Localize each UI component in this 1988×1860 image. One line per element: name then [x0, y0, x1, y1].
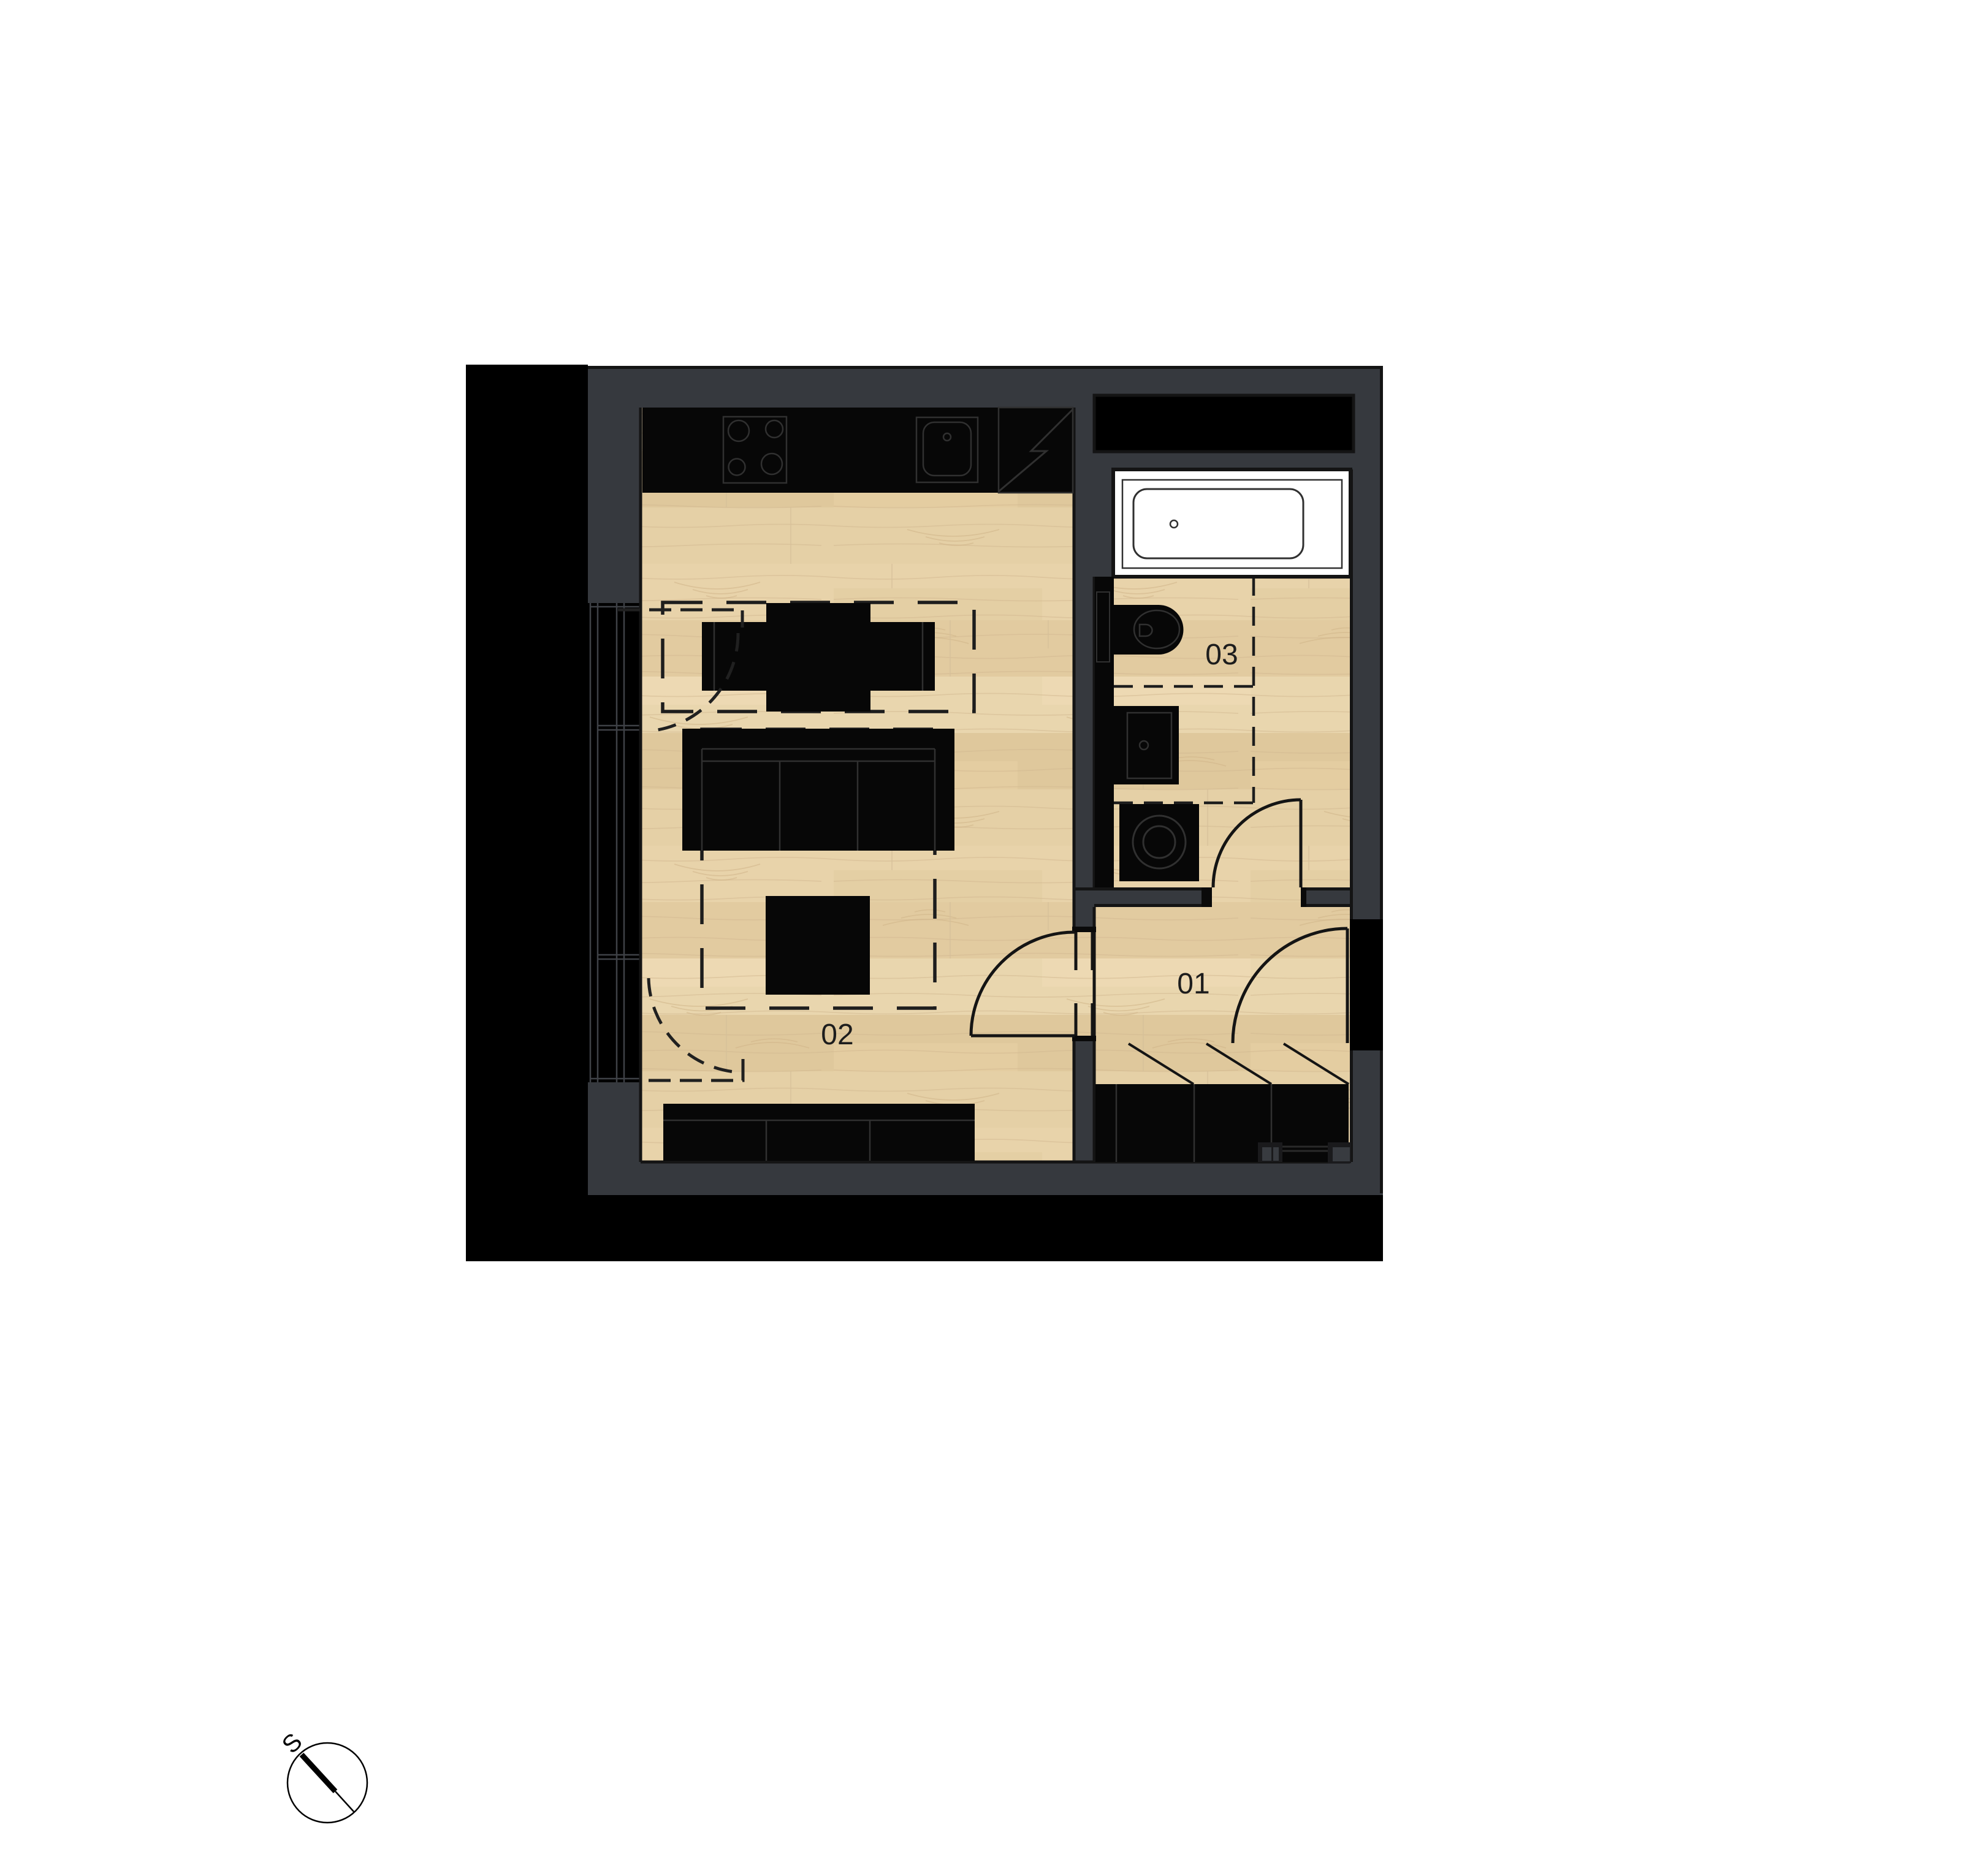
svg-text:02: 02 — [821, 1019, 853, 1051]
svg-text:01: 01 — [1177, 968, 1209, 1000]
svg-text:03: 03 — [1205, 639, 1238, 671]
